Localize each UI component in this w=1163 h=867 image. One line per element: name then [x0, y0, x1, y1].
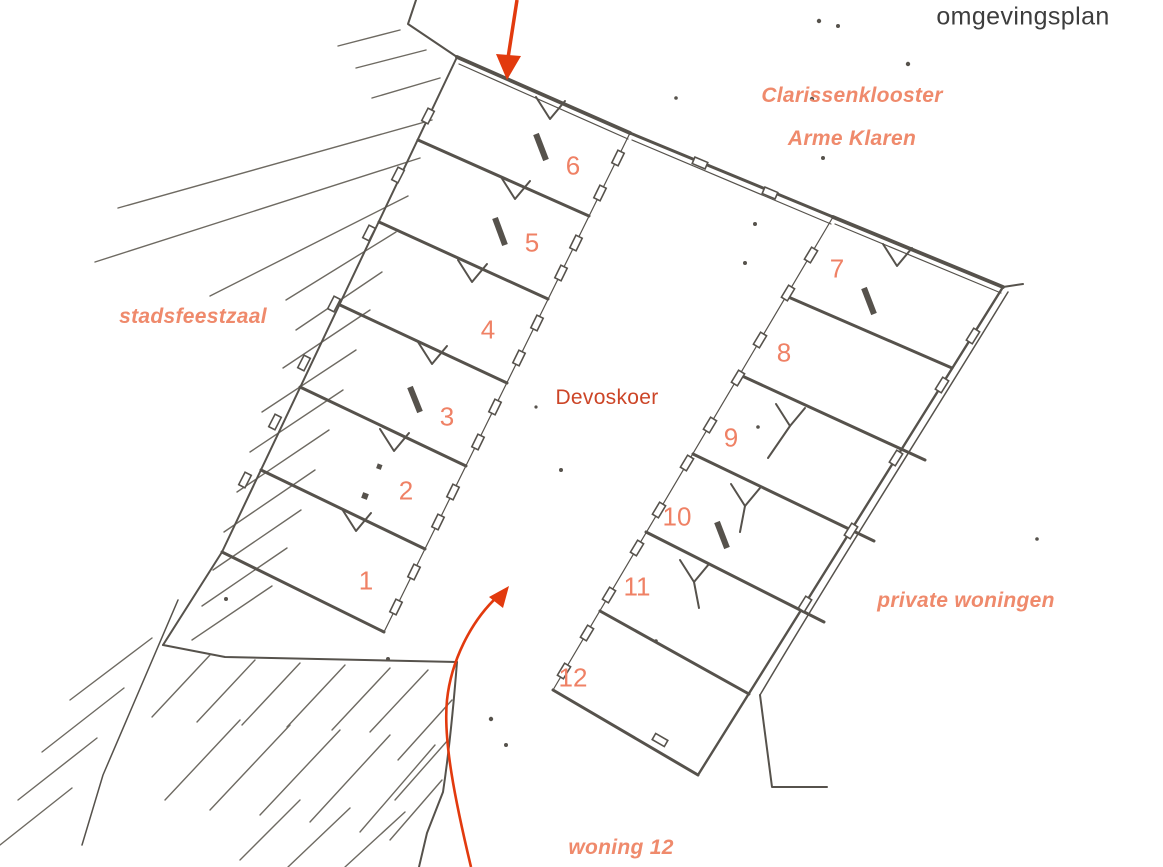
entrance-arrow-bottom	[446, 586, 509, 867]
left-building-top-wall	[457, 57, 630, 133]
label-private-woningen: private woningen	[877, 589, 1055, 613]
room-number-2: 2	[399, 476, 413, 507]
bottom-left-bank	[0, 600, 827, 867]
right-building-window-funnels	[680, 244, 912, 608]
room-number-6: 6	[566, 151, 580, 182]
right-building-bottom-wall	[553, 690, 698, 775]
right-building-top-wall	[833, 217, 1003, 287]
outer-boundary-line	[760, 292, 1008, 695]
room-number-8: 8	[777, 338, 791, 369]
left-building-window-funnels	[342, 97, 565, 531]
parcel-step-line	[760, 695, 827, 787]
scan-specks	[224, 19, 1039, 747]
room-number-5: 5	[525, 228, 539, 259]
right-building	[553, 217, 1023, 775]
room-number-10: 10	[663, 502, 692, 533]
room-number-7: 7	[830, 254, 844, 285]
room-number-1: 1	[359, 566, 373, 597]
room-number-12: 12	[559, 663, 588, 694]
label-clarissenklooster: Clarissenklooster	[761, 84, 942, 108]
site-plan-drawing	[0, 0, 1163, 867]
label-arme-klaren: Arme Klaren	[788, 127, 916, 151]
right-building-right-wall-piers	[652, 328, 979, 746]
label-woning-12: woning 12	[568, 836, 673, 860]
entrance-arrow-top	[496, 0, 521, 80]
bank-hatching	[0, 638, 452, 867]
room-number-11: 11	[624, 572, 651, 603]
room-number-3: 3	[440, 402, 454, 433]
label-devoskoer: Devoskoer	[555, 386, 658, 410]
room-number-9: 9	[724, 423, 738, 454]
left-building	[163, 57, 630, 645]
room-number-4: 4	[481, 315, 495, 346]
site-plan-page: omgevingsplan Clarissenklooster Arme Kla…	[0, 0, 1163, 867]
right-building-left-wall-piers	[557, 247, 817, 679]
page-title: omgevingsplan	[936, 3, 1109, 32]
label-stadsfeestzaal: stadsfeestzaal	[119, 305, 267, 329]
